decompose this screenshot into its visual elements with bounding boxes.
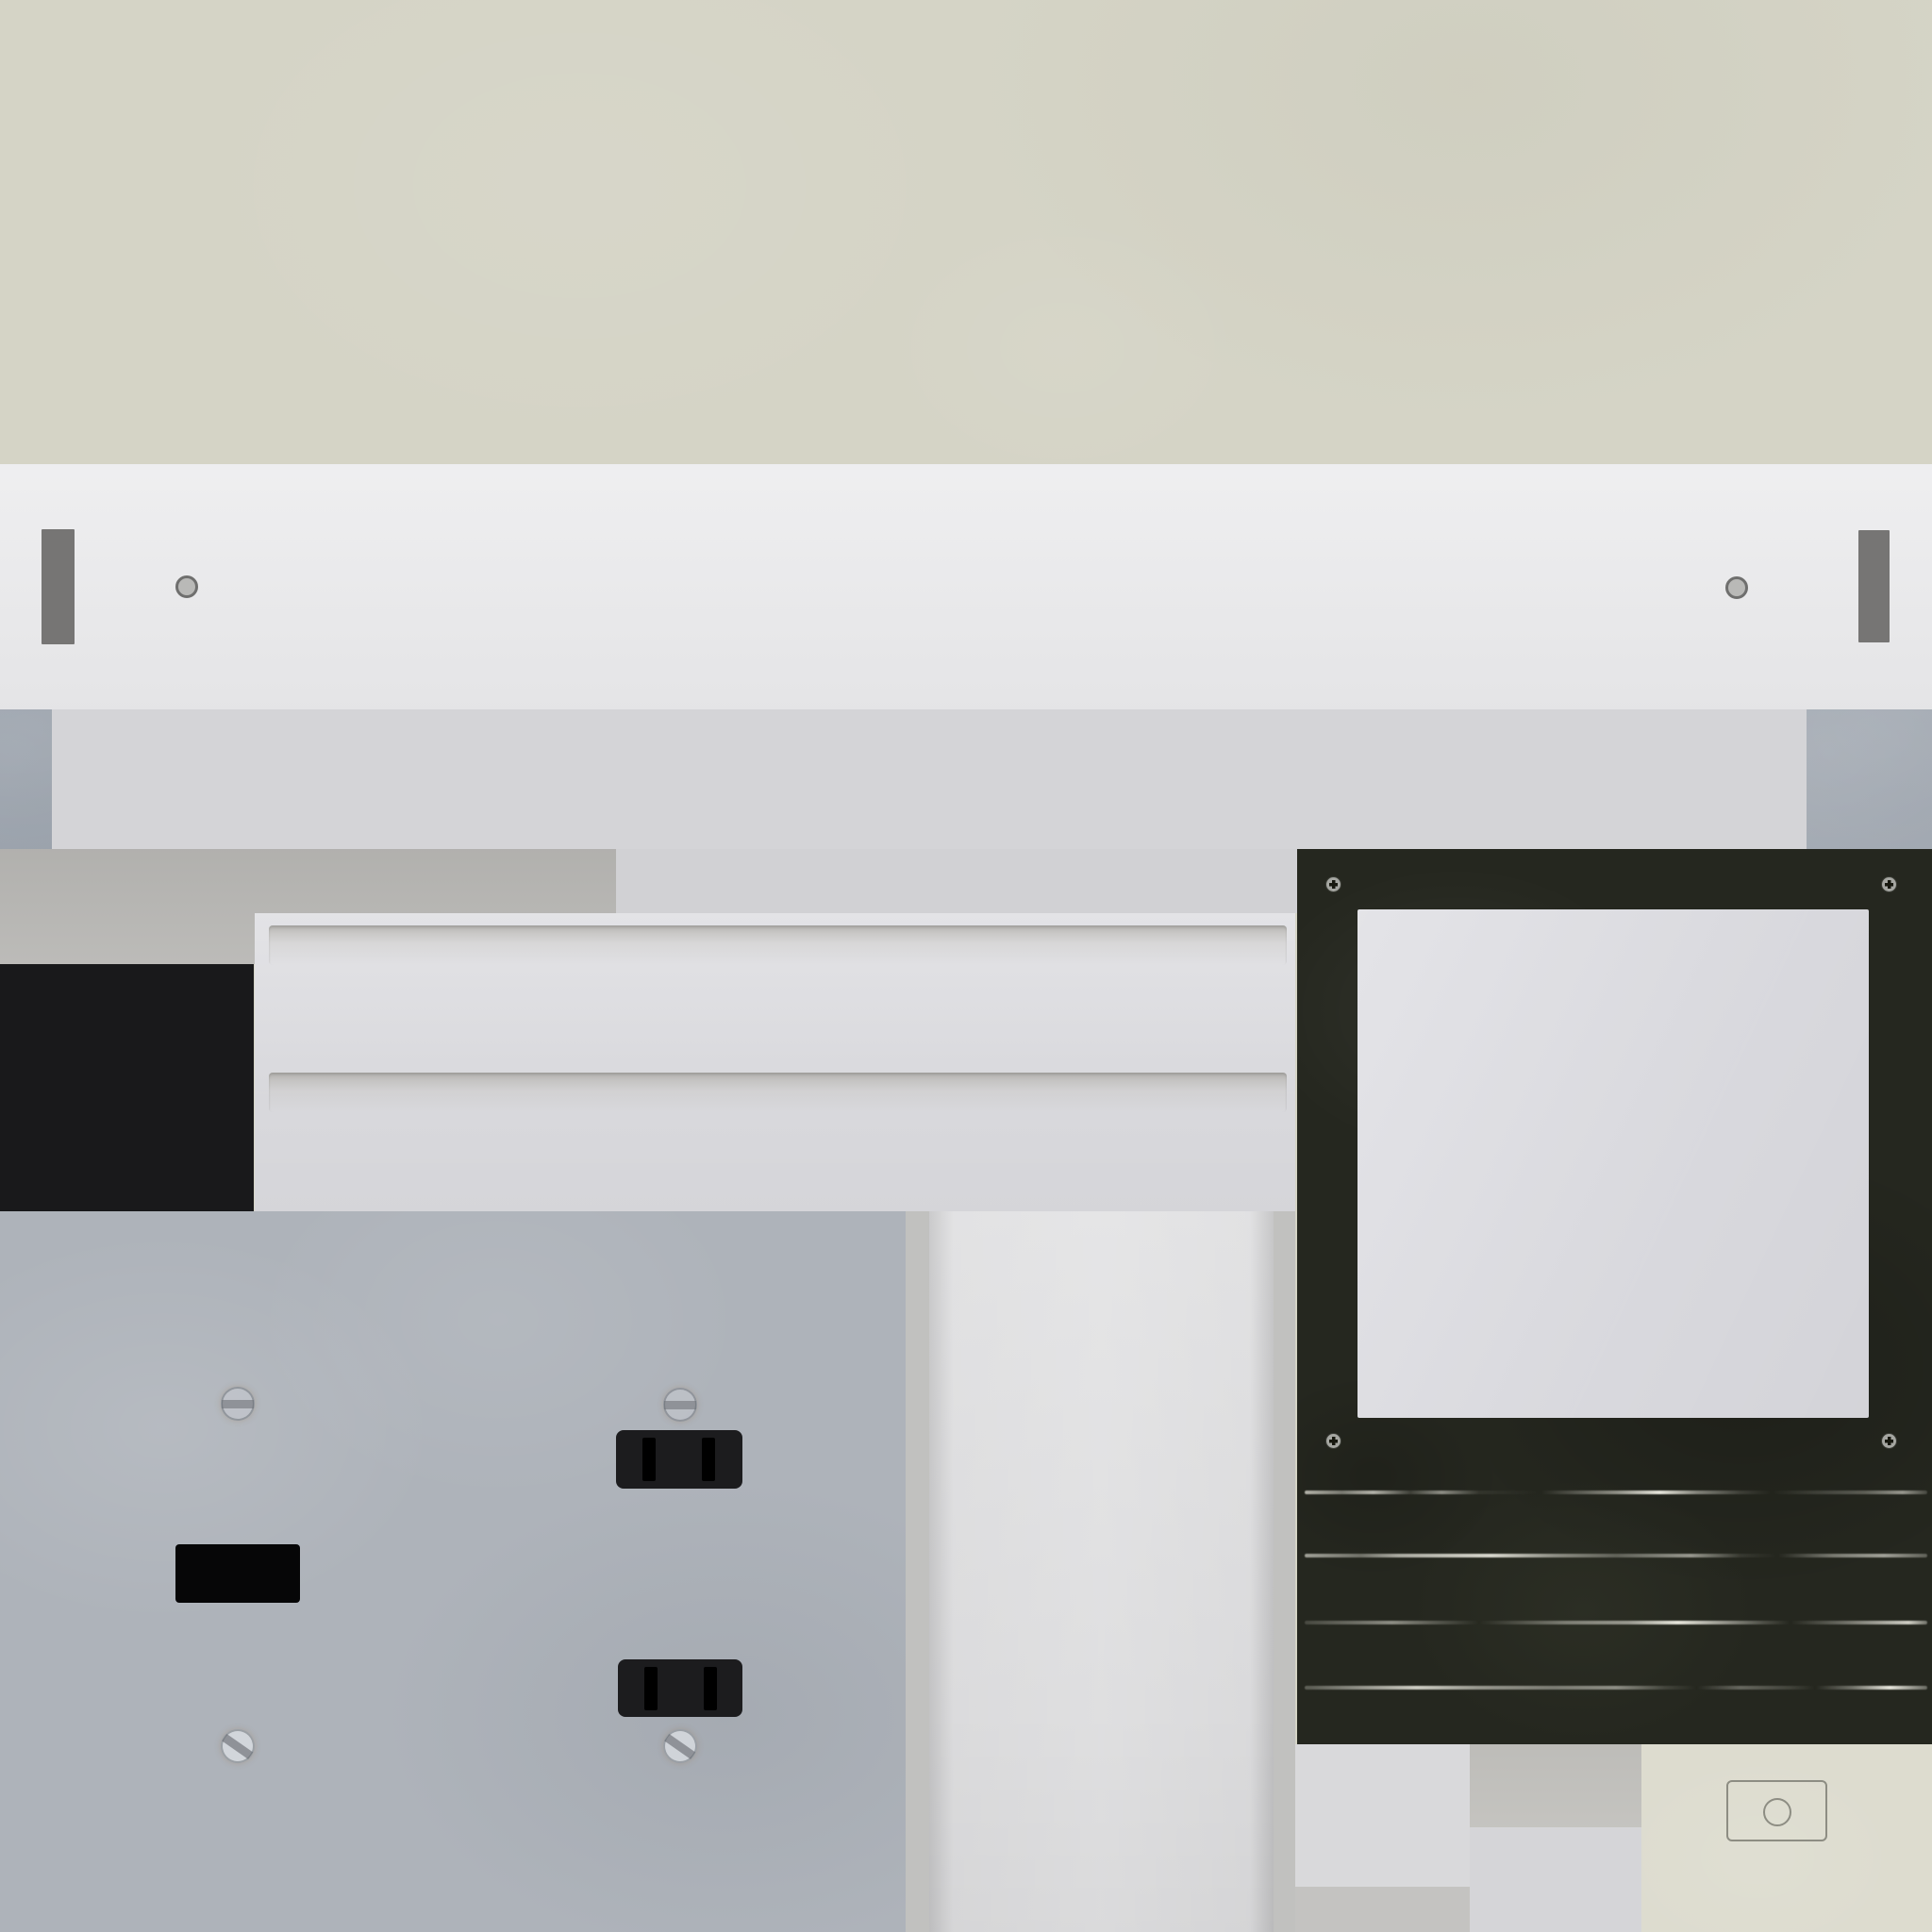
corner-block-right (1807, 709, 1932, 849)
slotted-screw-icon (221, 1387, 255, 1421)
skirting-band (0, 464, 1932, 709)
wall-plate-knockout-circle (1763, 1798, 1791, 1826)
slotted-screw-icon (214, 1723, 261, 1770)
shelf-groove-top (269, 925, 1287, 965)
peephole-fastener-right (1725, 576, 1748, 599)
upper-wall (0, 0, 1932, 464)
lower-wall-gray-block (1470, 1744, 1641, 1827)
phillips-screw-icon (1882, 877, 1896, 891)
gray-band (0, 709, 1932, 849)
chalk-line (1305, 1554, 1927, 1557)
outlet-slot (644, 1667, 658, 1710)
outlet-slot (704, 1667, 717, 1710)
lower-wall-mid (1470, 1827, 1641, 1932)
power-outlet-bottom (618, 1659, 742, 1717)
phillips-screw-icon (1326, 1434, 1341, 1448)
chalkboard-panel (1297, 849, 1932, 1744)
slotted-screw-icon (663, 1388, 697, 1422)
shelf-panel (255, 913, 1295, 1211)
phillips-screw-icon (1882, 1434, 1896, 1448)
chalk-line (1305, 1491, 1927, 1494)
outlet-slot (642, 1438, 656, 1481)
peephole-fastener-left (175, 575, 198, 598)
black-label-plate (175, 1544, 300, 1603)
pinned-paper-sheet (1357, 909, 1869, 1418)
outlet-slot (702, 1438, 715, 1481)
vent-slot-right (1858, 530, 1890, 642)
phillips-screw-icon (1326, 877, 1341, 891)
lower-wall-light-base (1295, 1887, 1470, 1932)
lower-wall-light (1295, 1744, 1470, 1887)
wall-scene (0, 0, 1932, 1932)
chalk-line (1305, 1686, 1927, 1690)
ledge-light (616, 849, 1297, 913)
small-black-board (0, 964, 254, 1214)
wall-strip-light (929, 1206, 1274, 1932)
shelf-groove-bottom (269, 1073, 1287, 1112)
vent-slot-left (42, 529, 75, 644)
chalk-line (1305, 1621, 1927, 1624)
corner-block-left (0, 709, 52, 849)
slotted-screw-icon (657, 1723, 704, 1770)
utility-panel (0, 1211, 906, 1932)
power-outlet-top (616, 1430, 742, 1489)
